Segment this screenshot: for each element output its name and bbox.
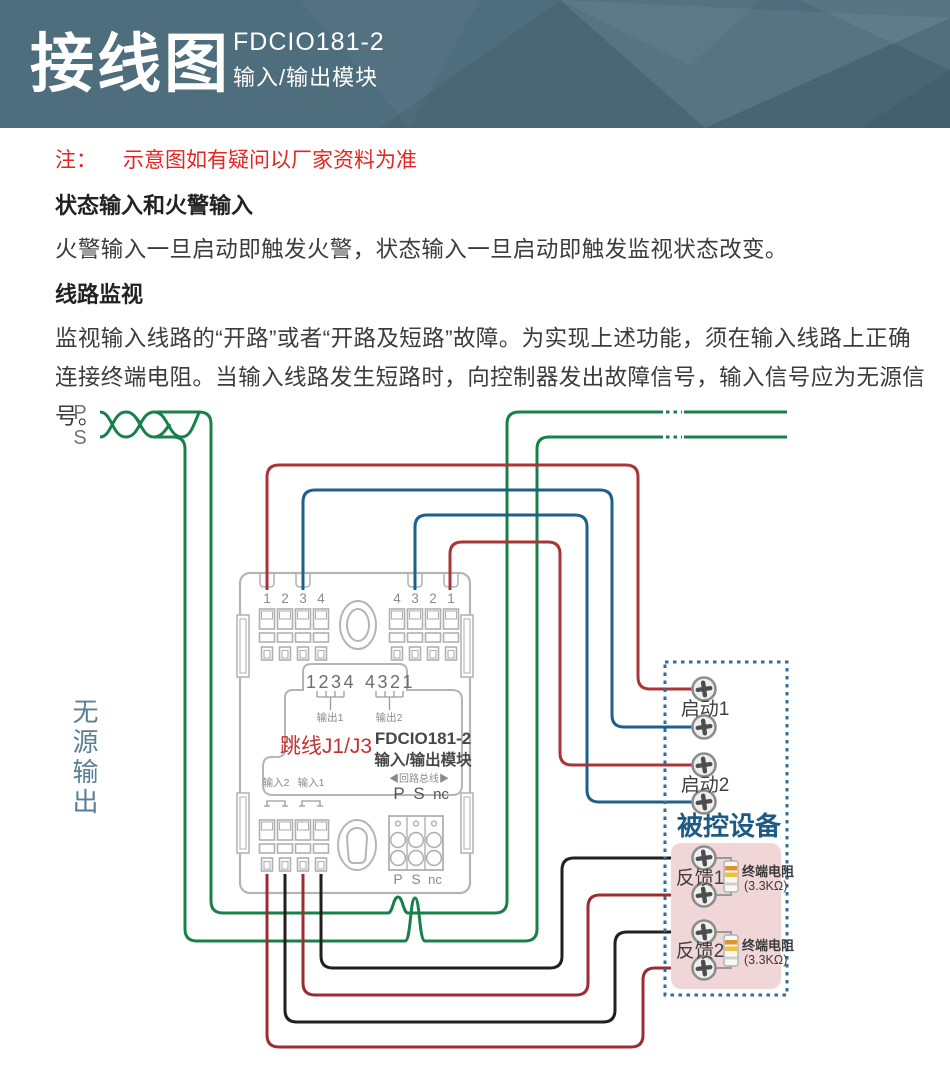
block-s-label: S: [411, 871, 420, 887]
pins-output1: 1234: [306, 672, 356, 692]
jumper-label: 跳线J1/J3: [280, 735, 372, 758]
controlled-device-title: 被控设备: [677, 811, 782, 841]
wiring-diagram: 无源输出: [0, 388, 950, 1083]
start1-label: 启动1: [681, 698, 730, 720]
note-prefix: 注：: [55, 149, 97, 172]
diagram-canvas: 1 2 3 4 4 3 2 1 1234 4321 输出1 输出2 跳线J1/J…: [0, 388, 950, 1083]
module-model: FDCIO181-2: [375, 729, 471, 748]
screw-feedback1-plus: [693, 847, 716, 870]
svg-text:1: 1: [447, 591, 455, 606]
section2-heading: 线路监视: [55, 280, 930, 310]
manufacturer-note: 注：示意图如有疑问以厂家资料为准: [55, 144, 930, 174]
resistor1-name: 终端电阻: [742, 864, 794, 879]
passive-output-label: 无源输出: [66, 698, 103, 818]
header-subtitle: 输入/输出模块: [233, 60, 378, 92]
page-title: 接线图: [30, 14, 231, 114]
resistor1-value: (3.3KΩ): [744, 879, 787, 893]
output2-label: 输出2: [376, 711, 403, 724]
block-nc-label: nc: [428, 872, 442, 887]
pin-s-label: S: [413, 784, 424, 803]
termination-resistor-2: [724, 935, 738, 966]
block-p-label: P: [393, 871, 402, 887]
feedback1-label: 反馈1: [676, 867, 725, 889]
pins-output2: 4321: [365, 672, 415, 692]
screw-start2-plus: [693, 754, 716, 777]
resistor2-name: 终端电阻: [742, 938, 794, 953]
output1-label: 输出1: [317, 711, 344, 724]
input2-label: 输入2: [263, 776, 290, 789]
resistor2-value: (3.3KΩ): [744, 953, 787, 967]
pin-nc-label: nc: [433, 786, 449, 803]
screw-start1-plus: [693, 678, 716, 701]
termination-resistor-1: [724, 861, 738, 892]
svg-text:1: 1: [263, 591, 271, 606]
bus-s-label: S: [73, 427, 86, 449]
header-banner: 接线图 FDCIO181-2 输入/输出模块: [0, 0, 950, 128]
svg-text:3: 3: [411, 591, 419, 606]
svg-text:2: 2: [429, 591, 437, 606]
feedback2-label: 反馈2: [676, 940, 725, 962]
section1-heading: 状态输入和火警输入: [55, 191, 930, 221]
page: 接线图 FDCIO181-2 输入/输出模块 注：示意图如有疑问以厂家资料为准 …: [0, 0, 950, 1083]
bus-p-label: P: [73, 402, 86, 424]
svg-text:2: 2: [281, 591, 289, 606]
header-model: FDCIO181-2: [233, 28, 385, 57]
start2-label: 启动2: [681, 774, 730, 796]
svg-text:3: 3: [299, 591, 307, 606]
pin-p-label: P: [393, 784, 404, 803]
svg-text:4: 4: [393, 591, 401, 606]
wire-output2-red: [450, 542, 692, 765]
input1-label: 输入1: [298, 776, 325, 789]
note-text: 示意图如有疑问以厂家资料为准: [123, 149, 417, 172]
svg-text:4: 4: [317, 591, 325, 606]
module-model-subtitle: 输入/输出模块: [374, 750, 472, 769]
section1-body: 火警输入一旦启动即触发火警，状态输入一旦启动即触发监视状态改变。: [55, 230, 930, 269]
